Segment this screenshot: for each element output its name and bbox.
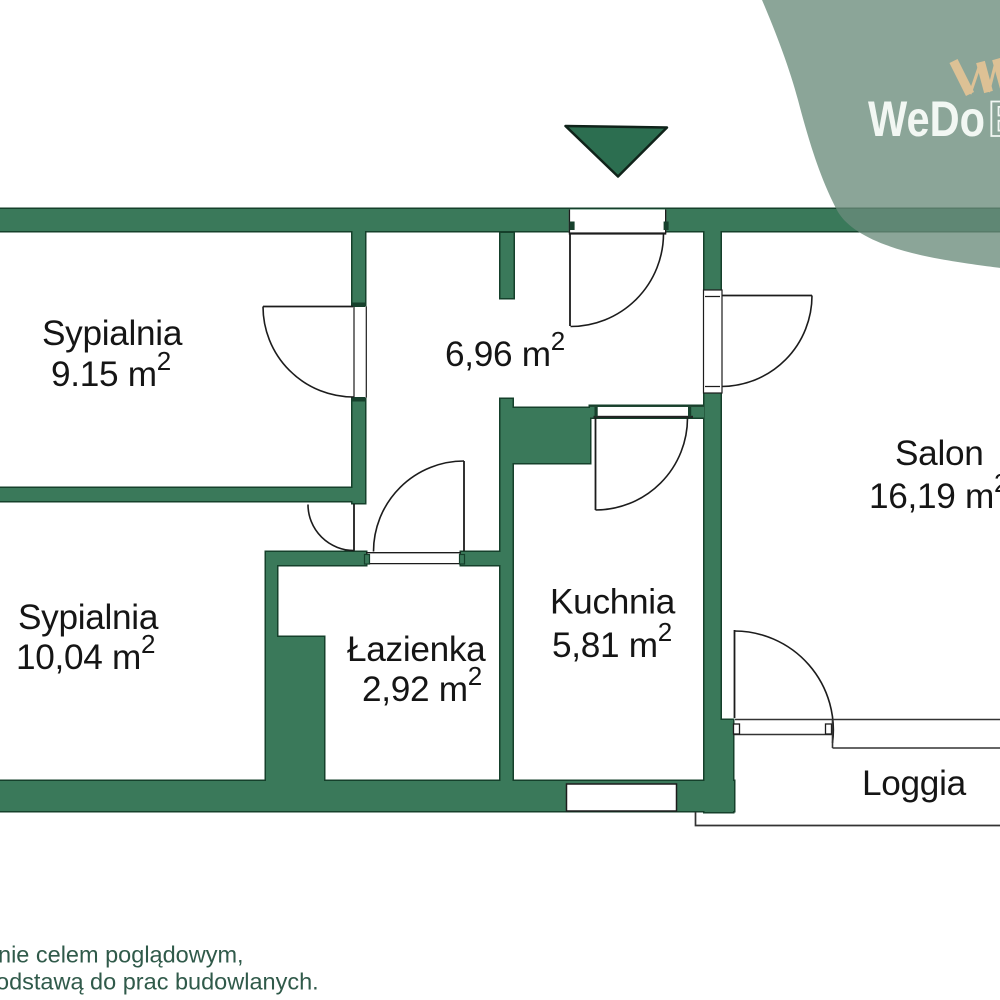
svg-text:Sypialnia: Sypialnia: [18, 598, 159, 637]
svg-text:B: B: [988, 91, 1000, 147]
svg-text:Loggia: Loggia: [862, 764, 967, 803]
svg-text:Salon: Salon: [895, 434, 984, 473]
svg-text:Łazienka: Łazienka: [347, 630, 486, 669]
svg-text:nie celem poglądowym,: nie celem poglądowym,: [0, 942, 244, 968]
svg-text:Kuchnia: Kuchnia: [550, 583, 676, 622]
svg-text:odstawą do prac budowlanych.: odstawą do prac budowlanych.: [0, 969, 319, 995]
svg-text:WeDo: WeDo: [868, 91, 985, 147]
